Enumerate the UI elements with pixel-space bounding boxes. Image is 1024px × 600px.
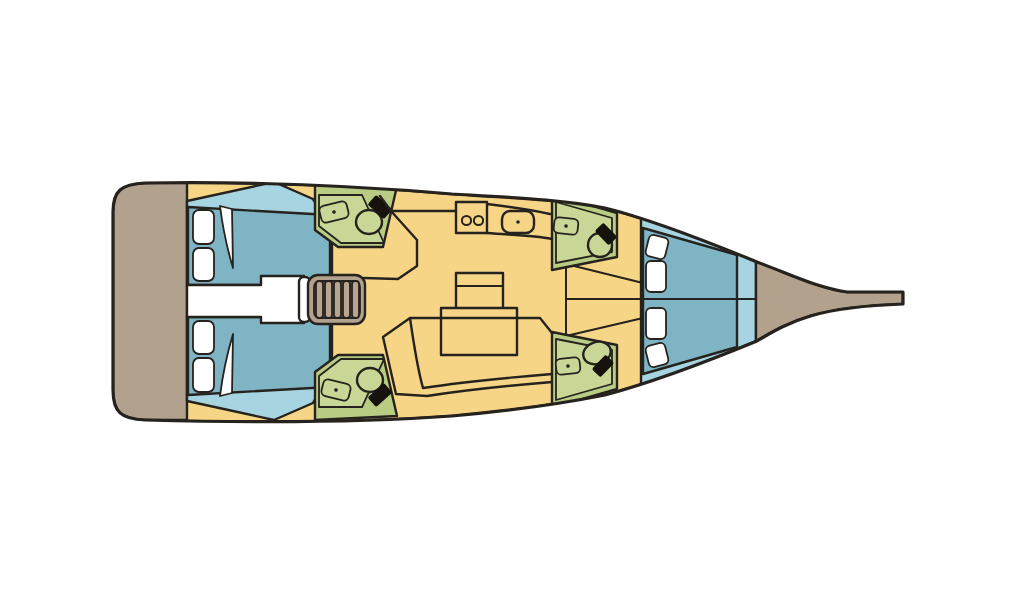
step-tread xyxy=(334,281,341,318)
companionway-steps xyxy=(299,275,365,324)
pillow xyxy=(646,261,666,292)
yacht-floor-plan-page: Top-down interior layout plan of a saili… xyxy=(0,0,1024,600)
pillow xyxy=(193,358,214,392)
step-tread xyxy=(325,281,332,318)
pillow xyxy=(193,321,214,354)
forward-head-starboard xyxy=(552,332,617,408)
interior-group xyxy=(113,182,903,422)
step-tread xyxy=(352,281,359,318)
step-tread xyxy=(316,281,323,318)
table-top xyxy=(441,308,517,355)
pillow xyxy=(645,234,670,260)
pillow xyxy=(193,210,214,244)
pillow xyxy=(646,308,666,339)
stern-platform xyxy=(113,182,187,420)
aft-head-starboard xyxy=(315,355,397,420)
step-tread xyxy=(343,281,350,318)
pillow xyxy=(193,248,214,281)
aft-head-port xyxy=(315,182,397,247)
sink-drain xyxy=(516,220,520,224)
yacht-layout-diagram: Top-down interior layout plan of a saili… xyxy=(0,0,1024,600)
pillow xyxy=(645,342,670,368)
